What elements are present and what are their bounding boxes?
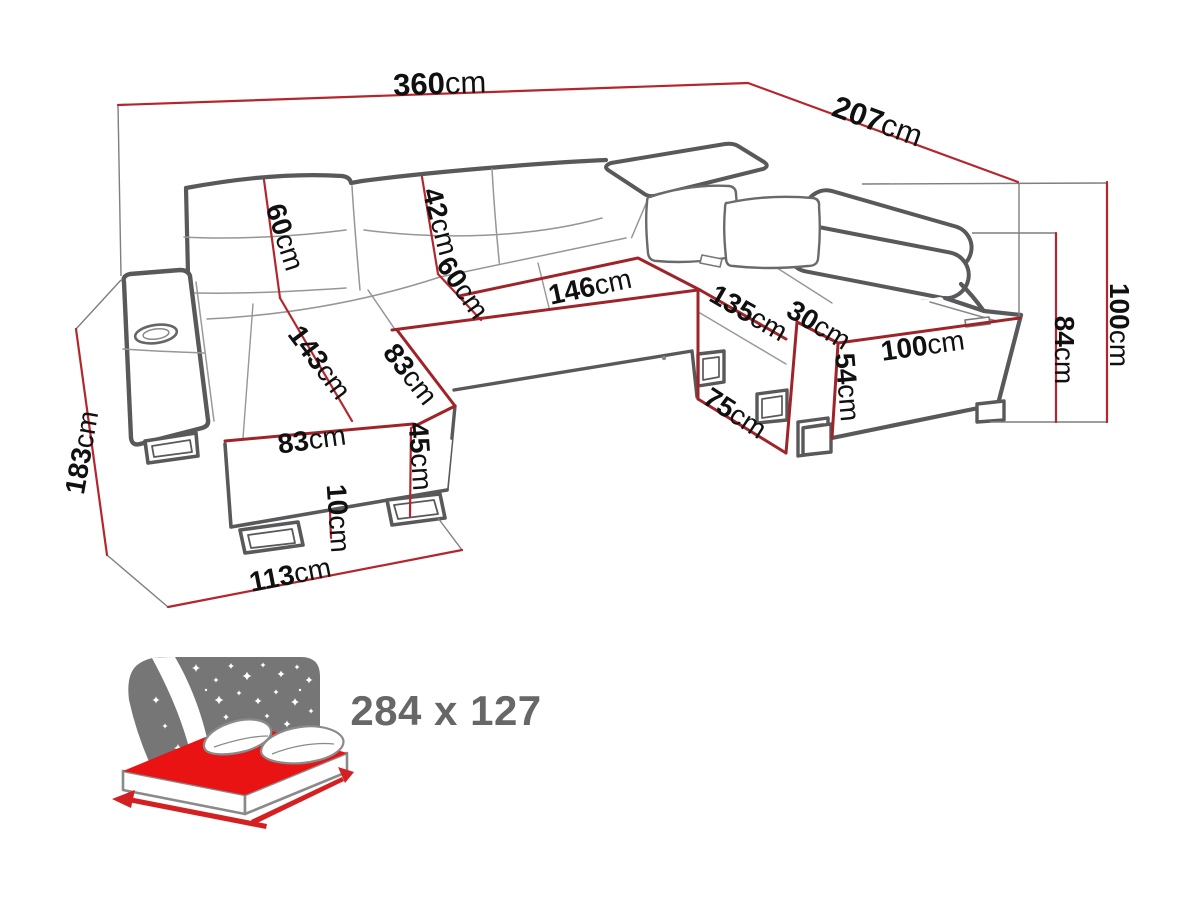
svg-text:45cm: 45cm	[403, 421, 439, 491]
svg-text:100cm: 100cm	[1104, 283, 1135, 367]
svg-text:10cm: 10cm	[321, 483, 357, 553]
svg-text:113cm: 113cm	[247, 552, 334, 598]
svg-text:207cm: 207cm	[828, 89, 927, 154]
svg-text:54cm: 54cm	[829, 352, 866, 423]
svg-text:84cm: 84cm	[1049, 316, 1080, 384]
svg-text:284 x 127: 284 x 127	[350, 687, 541, 734]
svg-text:360cm: 360cm	[393, 64, 487, 102]
